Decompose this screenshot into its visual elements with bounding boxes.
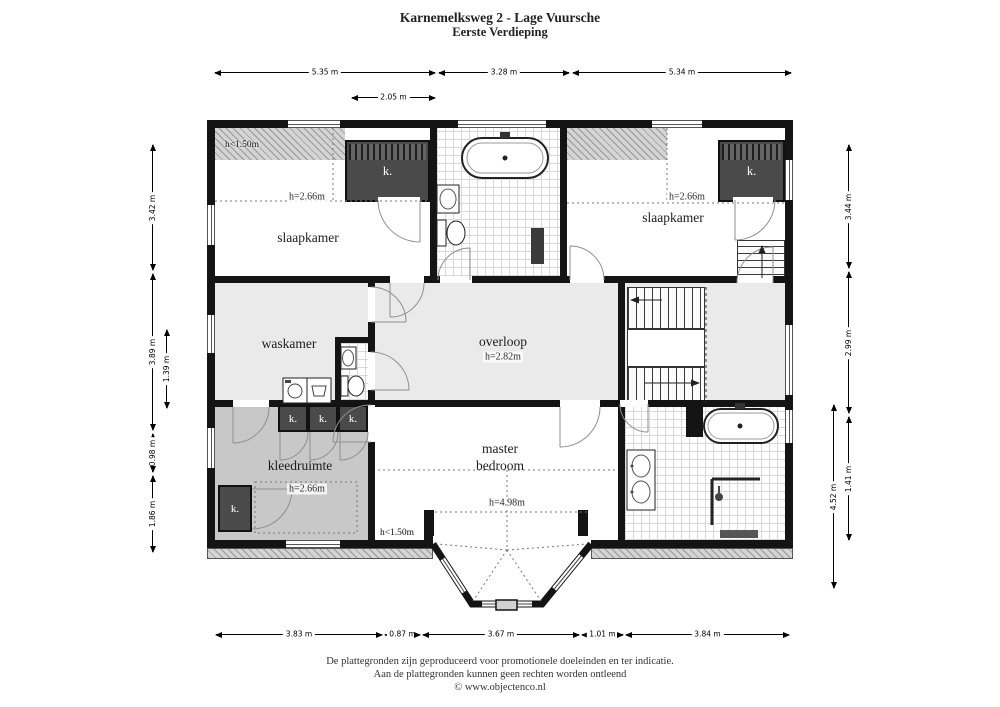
dimension-label: 3.42 m xyxy=(148,191,158,223)
dimension: 1.39 m xyxy=(166,330,167,408)
door-arc xyxy=(371,287,406,322)
door-arc xyxy=(438,248,470,280)
door-arc xyxy=(620,404,648,432)
door-arc xyxy=(735,200,775,240)
sink-icon xyxy=(341,347,356,369)
footer-disclaimer-1: De plattegronden zijn geproduceerd voor … xyxy=(0,656,1000,667)
dimension: 3.83 m xyxy=(216,634,382,635)
dimension: 3.89 m xyxy=(152,274,153,430)
dimension-label: 0.87 m xyxy=(386,630,418,640)
door-arc xyxy=(340,432,368,460)
room-label-master-bedroom: master bedroom xyxy=(476,441,524,475)
floor-plan-page: Karnemelksweg 2 - Lage Vuursche Eerste V… xyxy=(0,0,1000,707)
door-arc xyxy=(737,247,773,283)
room-label-waskamer: waskamer xyxy=(262,336,317,352)
dimension: 3.44 m xyxy=(848,145,849,268)
dimension: 2.05 m xyxy=(352,97,435,98)
dimension: 3.42 m xyxy=(152,145,153,270)
door-arc xyxy=(280,432,308,460)
room-label-line: bedroom xyxy=(476,458,524,475)
dryer-icon xyxy=(307,378,331,403)
low-headroom-label: h<1.50m xyxy=(225,140,259,150)
washer-icon xyxy=(283,378,307,403)
door-arcs xyxy=(233,200,775,529)
toilet-icon xyxy=(437,220,465,246)
dimension-label: 2.05 m xyxy=(377,93,409,103)
dimension: 3.67 m xyxy=(423,634,579,635)
dimension-label: 1.86 m xyxy=(148,498,158,530)
bathtub-icon xyxy=(462,132,548,178)
double-sink-icon xyxy=(627,450,655,510)
low-headroom-label: h<1.50m xyxy=(380,528,414,538)
dimension: 0.98 m xyxy=(152,434,153,472)
dimension-label: 5.35 m xyxy=(309,68,341,78)
dimension-label: 5.34 m xyxy=(666,68,698,78)
stair-arrow xyxy=(630,245,766,387)
dimension-label: 0.98 m xyxy=(148,437,158,469)
dimension: 4.52 m xyxy=(833,405,834,588)
dimension-label: 3.28 m xyxy=(488,68,520,78)
dimension: 5.34 m xyxy=(573,72,791,73)
door-arc xyxy=(560,407,600,447)
door-arc xyxy=(233,407,269,443)
dimension-label: 4.52 m xyxy=(829,480,839,512)
dimension-label: 1.39 m xyxy=(162,353,172,385)
dimension-label: 3.44 m xyxy=(844,190,854,222)
dimension: 1.41 m xyxy=(848,417,849,540)
door-arc xyxy=(378,200,420,242)
dimension: 5.35 m xyxy=(215,72,435,73)
sink-icon xyxy=(437,185,459,213)
footer-disclaimer-2: Aan de plattegronden kunnen geen rechten… xyxy=(0,669,1000,680)
dimension-label: 2.99 m xyxy=(844,326,854,358)
dimension: 2.99 m xyxy=(848,272,849,413)
dimension: 1.01 m xyxy=(582,634,623,635)
door-arc xyxy=(252,489,292,529)
room-label-line: master xyxy=(476,441,524,458)
door-arc xyxy=(371,352,409,390)
room-label-slaapkamer-right: slaapkamer xyxy=(642,210,703,226)
room-label-kleedruimte: kleedruimte xyxy=(268,458,332,474)
toilet-icon xyxy=(341,376,364,396)
door-arc xyxy=(390,283,424,317)
height-label: h=4.98m xyxy=(487,498,527,509)
dimension: 1.86 m xyxy=(152,476,153,552)
dimension: 0.87 m xyxy=(385,634,420,635)
bathtub-icon xyxy=(704,403,778,443)
dimension-label: 3.67 m xyxy=(485,630,517,640)
door-arc xyxy=(570,246,604,280)
dimension: 3.28 m xyxy=(439,72,569,73)
dimension-label: 3.89 m xyxy=(148,336,158,368)
door-arc xyxy=(333,405,371,442)
dimension-label: 3.84 m xyxy=(691,630,723,640)
room-label-slaapkamer-left: slaapkamer xyxy=(277,230,338,246)
height-label: h=2.82m xyxy=(483,352,523,363)
dimension-label: 1.01 m xyxy=(586,630,618,640)
radiator-icon xyxy=(531,228,544,264)
dimension: 3.84 m xyxy=(626,634,789,635)
bay-window xyxy=(433,536,591,610)
room-label-overloop: overloop xyxy=(479,334,527,350)
dimension-label: 1.41 m xyxy=(844,462,854,494)
height-label: h=2.66m xyxy=(287,484,327,495)
dimension-label: 3.83 m xyxy=(283,630,315,640)
height-label: h=2.66m xyxy=(287,192,327,203)
shower-icon xyxy=(712,479,760,538)
footer-copyright: © www.objectenco.nl xyxy=(0,682,1000,693)
height-label: h=2.66m xyxy=(667,192,707,203)
